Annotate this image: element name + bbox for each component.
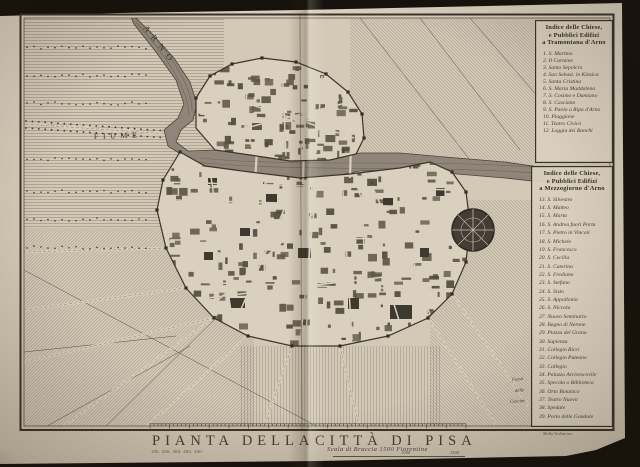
legend-tramontana-list: 1. S. Martino 2. Il Carmine 3. Santo Sep… <box>536 51 612 135</box>
scale-number-1500: 1500 <box>450 450 459 455</box>
legend-item: 4. San Sebast. in Kinsica <box>543 72 610 79</box>
legend-item: 20. S. Cecilia <box>539 254 610 262</box>
legend-tramontana: Indice delle Chiese, e Pubblici Edifizi … <box>535 20 613 163</box>
map-title: PIANTA DELLA CITTÀ DI PISA <box>0 431 640 453</box>
legend-mezzogiorno-list: 13. S. Silvestro 14. S. Matteo 15. S. Ma… <box>532 196 612 421</box>
map-title-left: PIANTA DELLA <box>152 433 314 450</box>
area-label-line2: delle <box>515 388 526 394</box>
legend-item: 38. Spedale <box>539 404 610 412</box>
legend-item: 21. S. Caterina <box>539 263 610 271</box>
legend-item: 14. S. Matteo <box>539 204 610 212</box>
legend-item: 33. Collegio <box>539 363 610 371</box>
legend-item: 31. Collegio Ricci <box>539 346 610 354</box>
legend-item: 3. Santo Sepolcro <box>543 65 610 72</box>
legend-item: 1. S. Martino <box>543 51 610 58</box>
book-page-photo: ARNO FIUME Fosso delle Cascine Molla Vio… <box>0 0 640 467</box>
legend-item: 19. S. Francesco <box>539 246 610 254</box>
legend-item: 7. S. Cosimo e Damiano <box>543 93 610 100</box>
legend-item: 5. Santa Cristina <box>543 79 610 86</box>
legend-item: 28. Bagno di Nerone <box>539 321 610 329</box>
legend-tramontana-title-line3: a Tramontana d'Arno <box>536 39 612 47</box>
legend-item: 39. Porto delle Gondole <box>539 413 610 421</box>
legend-item: 18. S. Michele <box>539 238 610 246</box>
legend-item: 2. Il Carmine <box>543 58 610 65</box>
legend-item: 35. Specola o Biblioteca <box>539 379 610 387</box>
legend-item: 6. S. Maria Maddalena <box>543 86 610 93</box>
legend-mezzogiorno: Indice delle Chiese, e Pubblici Edifizi … <box>531 166 613 427</box>
legend-item: 22. S. Frediano <box>539 271 610 279</box>
legend-item: 8. S. Casciano <box>543 100 610 107</box>
legend-item: 24. S. Sisto <box>539 288 610 296</box>
legend-mezzogiorno-title-line2: e Pubblici Edifizi <box>532 178 612 186</box>
legend-tramontana-title-line2: e Pubblici Edifizi <box>536 32 612 40</box>
legend-item: 15. S. Marta <box>539 212 610 220</box>
legend-item: 9. S. Paolo a Ripa d'Arno <box>543 107 610 114</box>
legend-item: 13. S. Silvestro <box>539 196 610 204</box>
scale-label: Scala di Braccia 1500 Fiorentine <box>327 446 428 453</box>
legend-item: 17. S. Pietro in Vincoli <box>539 229 610 237</box>
fields-south <box>240 346 440 426</box>
river-label-fiume: FIUME <box>94 130 142 141</box>
legend-mezzogiorno-title-line3: a Mezzogiorno d'Arno <box>532 185 612 193</box>
legend-item: 11. Teatro Civico <box>543 121 610 128</box>
legend-item: 36. Orto Botanico <box>539 388 610 396</box>
legend-item: 34. Palazzo Arcivescovile <box>539 371 610 379</box>
legend-item: 29. Piazza del Grano <box>539 329 610 337</box>
scale-numbers-small: 100. 200. 300. 400. 500. <box>151 449 203 454</box>
legend-item: 32. Collegio Puteano <box>539 354 610 362</box>
legend-item: 26. S. Niccola <box>539 304 610 312</box>
legend-item: 16. S. Andrea fuori Porta <box>539 221 610 229</box>
circular-bastion <box>452 209 494 251</box>
legend-item: 27. Nuovo Seminario <box>539 313 610 321</box>
legend-item: 12. Loggia dei Banchi <box>543 128 610 135</box>
scale-bar-line <box>333 456 465 457</box>
legend-item: 10. Piaggione <box>543 114 610 121</box>
legend-item: 37. Teatro Nuovo <box>539 396 610 404</box>
scale-number-1000: 1000 <box>401 450 410 455</box>
legend-mezzogiorno-title-line1: Indice delle Chiese, <box>532 170 612 178</box>
legend-item: 25. S. Appollonia <box>539 296 610 304</box>
legend-item: 30. Sapienza <box>539 338 610 346</box>
legend-tramontana-title-line1: Indice delle Chiese, <box>536 24 612 32</box>
legend-item: 23. S. Stefano <box>539 279 610 287</box>
